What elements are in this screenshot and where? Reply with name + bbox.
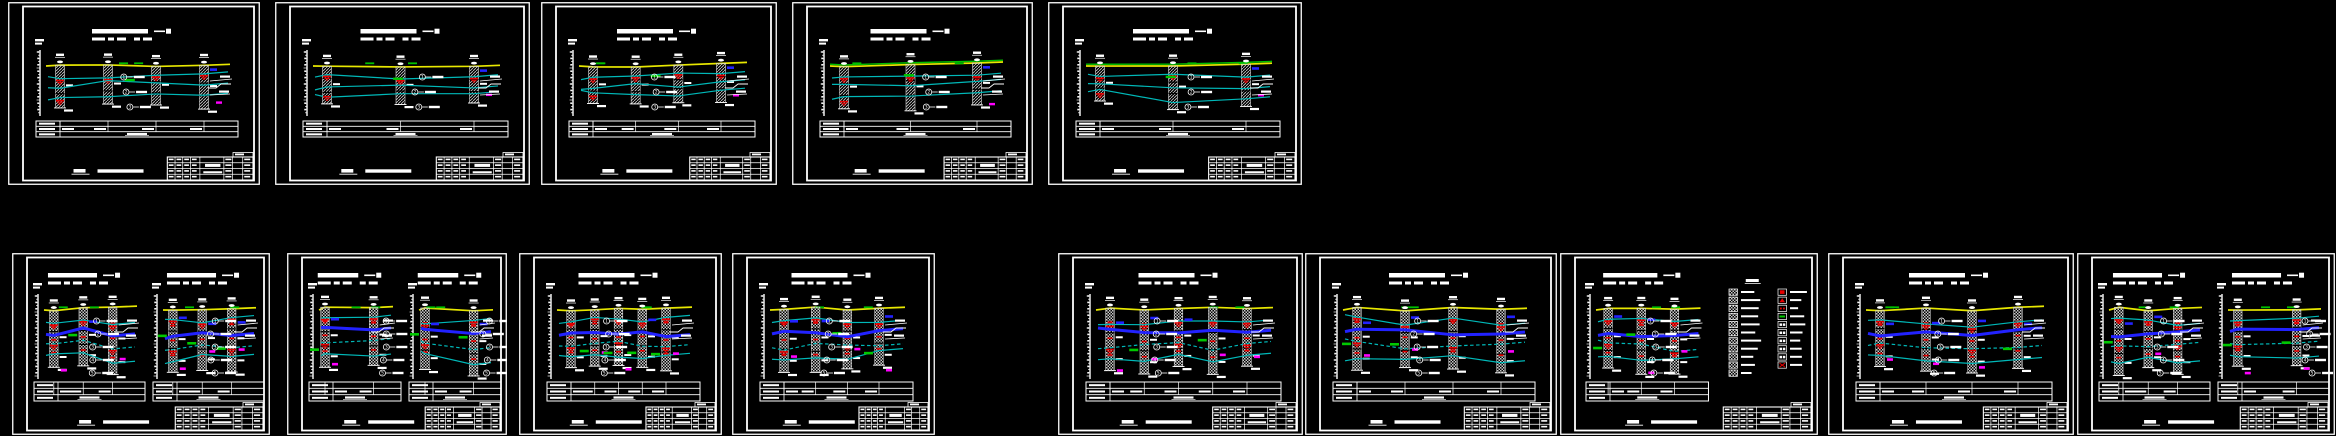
ground-surface-line <box>44 306 137 311</box>
borehole-column <box>321 55 340 108</box>
profile-data-table <box>2099 382 2210 401</box>
stratum-number: 2 <box>827 332 830 338</box>
profile-data-table <box>1586 382 1708 401</box>
profile-panel: 12345 <box>408 273 507 401</box>
drawing-sheet-B9[interactable]: 1234512345 <box>2077 253 2335 435</box>
panel-title <box>1909 273 1988 285</box>
stratum-number: 4 <box>825 358 828 364</box>
stratum-annotations: 123 <box>121 74 151 111</box>
signature-row <box>853 169 925 174</box>
stratum-number: 3 <box>605 345 608 351</box>
title-block <box>436 153 523 181</box>
elevation-callouts <box>725 76 749 96</box>
sheet-drawing: 123 <box>541 2 777 185</box>
stratum-number: 5 <box>91 371 94 377</box>
borehole-column <box>198 54 217 113</box>
stratum-number: 3 <box>1187 105 1190 111</box>
stratum-number: 2 <box>1155 332 1158 338</box>
stratum-number: 5 <box>2159 371 2162 377</box>
drawing-sheet-B1[interactable]: 1234512345 <box>12 253 270 435</box>
profile-panel: 12345 <box>1085 273 1281 401</box>
profile-panel: 123 <box>819 29 1011 137</box>
stratum-annotations: 123 <box>923 74 950 111</box>
stratum-number: 4 <box>486 358 489 364</box>
panel-title <box>792 273 871 285</box>
stratum-number: 5 <box>823 371 826 377</box>
panel-title <box>418 273 482 285</box>
elevation-ruler <box>1075 39 1084 116</box>
borehole-column <box>150 55 169 109</box>
sheet-drawing: 12345 <box>1058 253 1303 435</box>
sheet-drawing: 12345 <box>1560 253 1818 435</box>
stratum-number: 1 <box>1940 319 1943 325</box>
profile-data-table <box>820 121 1011 137</box>
borehole-column <box>1668 298 1687 378</box>
title-block <box>646 403 715 431</box>
stratum-number: 3 <box>214 345 217 351</box>
sheet-drawing: 123 <box>275 2 530 185</box>
stratum-number: 1 <box>2162 319 2165 325</box>
sheet-row-bottom: 1234512345123451234512345123451234512345… <box>0 253 2336 435</box>
title-block <box>944 153 1026 181</box>
stratum-number: 3 <box>417 105 420 111</box>
elevation-ruler <box>546 283 555 379</box>
signature-row <box>1625 420 1697 425</box>
elevation-callouts <box>478 76 502 96</box>
sheet-drawing: 123 <box>1048 2 1302 185</box>
signature-row <box>77 420 149 425</box>
stratum-number: 3 <box>91 345 94 351</box>
stratum-number: 4 <box>1651 358 1654 364</box>
profile-panel: 12345 <box>546 273 700 401</box>
stratum-number: 5 <box>2311 371 2314 377</box>
profile-data-table <box>569 121 755 137</box>
strata-lines <box>46 320 135 363</box>
sheet-drawing: 123 <box>792 2 1033 185</box>
stratum-number: 4 <box>1153 358 1156 364</box>
stratum-number: 3 <box>488 345 491 351</box>
drawing-sheet-T2[interactable]: 123 <box>275 2 530 185</box>
stratum-number: 4 <box>1937 358 1940 364</box>
stratum-annotations: 12345 <box>1411 318 1441 377</box>
sheet-drawing: 12345 <box>1305 253 1557 435</box>
panel-title <box>48 273 120 285</box>
stratum-number: 4 <box>209 358 212 364</box>
stratum-number: 1 <box>1156 319 1159 325</box>
ground-surface-line <box>557 306 692 310</box>
stratum-number: 1 <box>924 75 927 81</box>
stratum-number: 1 <box>1190 75 1193 81</box>
cad-model-space[interactable]: 1231231231231231234512345123451234512345… <box>0 0 2336 436</box>
stratum-number: 2 <box>97 332 100 338</box>
stratum-annotations: 12345 <box>1931 318 1962 377</box>
stratum-number: 5 <box>485 371 488 377</box>
panel-title <box>579 273 658 285</box>
profile-panel: 12345 <box>1585 273 1708 401</box>
elevation-ruler <box>1332 283 1341 379</box>
drawing-sheet-B6[interactable]: 12345 <box>1305 253 1557 435</box>
elevation-ruler <box>308 283 317 379</box>
stratum-number: 2 <box>125 90 128 96</box>
stratum-number: 4 <box>382 358 385 364</box>
drawing-sheet-B4[interactable]: 12345 <box>732 253 935 435</box>
panel-title <box>92 29 171 41</box>
panel-title <box>1603 273 1680 285</box>
signature-row <box>2142 420 2214 425</box>
elevation-callouts <box>2180 320 2204 340</box>
elevation-ruler <box>759 283 768 379</box>
signature-row <box>600 169 672 174</box>
panel-title <box>2113 273 2185 285</box>
stratum-number: 3 <box>1416 345 1419 351</box>
profile-panel: 12345 <box>1855 273 2052 401</box>
stratum-number: 2 <box>1412 332 1415 338</box>
profile-data-table <box>1086 382 1281 401</box>
drawing-sheet-B3[interactable]: 12345 <box>519 253 722 435</box>
stratum-number: 2 <box>927 90 930 96</box>
stratum-number: 3 <box>1939 345 1942 351</box>
sheet-drawing: 123 <box>8 2 260 185</box>
stratum-number: 1 <box>421 75 424 81</box>
elevation-ruler <box>1585 283 1594 379</box>
elevation-ruler <box>1085 283 1094 379</box>
profile-data-table <box>1333 382 1535 401</box>
sheet-row-top: 123123123123123 <box>0 2 2336 185</box>
borehole-column <box>2172 297 2191 378</box>
stratum-number: 3 <box>1654 345 1657 351</box>
borehole-column <box>1094 55 1113 105</box>
drawing-sheet-B5[interactable]: 12345 <box>1058 253 1303 435</box>
stratum-number: 1 <box>828 319 831 325</box>
panel-title <box>1133 29 1212 41</box>
signature-row <box>1112 169 1184 174</box>
elevation-ruler <box>2217 283 2226 379</box>
profile-panel: 123 <box>1075 29 1280 137</box>
stratum-number: 5 <box>1417 371 1420 377</box>
stratum-number: 3 <box>1155 345 1158 351</box>
profile-panel: 12345 <box>1332 273 1535 401</box>
panel-title <box>2232 273 2304 285</box>
sheet-drawing: 1234512345 <box>2077 253 2335 435</box>
elevation-ruler <box>2098 283 2107 379</box>
title-block <box>425 403 500 431</box>
elevation-ruler <box>408 283 417 379</box>
borehole-column <box>778 298 797 376</box>
panel-title <box>361 29 440 41</box>
profile-data-table <box>309 382 401 401</box>
title-block <box>1213 403 1296 431</box>
stratum-annotations: 12345 <box>480 318 507 377</box>
stratum-number: 1 <box>1649 319 1652 325</box>
panel-title <box>1389 273 1468 285</box>
ground-surface-line <box>163 306 256 310</box>
signature-row <box>1369 420 1441 425</box>
drawing-sheet-T5[interactable]: 123 <box>1048 2 1302 185</box>
stratum-number: 1 <box>653 75 656 81</box>
stratum-number: 4 <box>1418 358 1421 364</box>
signature-row <box>339 169 411 174</box>
stratum-number: 3 <box>2305 345 2308 351</box>
stratum-number: 2 <box>1190 90 1193 96</box>
elevation-ruler <box>568 39 577 116</box>
borehole-column <box>1966 299 1985 376</box>
stratum-number: 2 <box>1936 332 1939 338</box>
profile-data-table <box>1076 121 1280 137</box>
profile-data-table <box>547 382 700 401</box>
elevation-callouts <box>1505 320 1529 340</box>
stratum-number: 5 <box>381 371 384 377</box>
title-block <box>175 403 263 431</box>
profile-data-table <box>36 121 238 137</box>
signature-row <box>783 420 855 425</box>
profile-panel: 12345 <box>2098 273 2210 401</box>
title-block <box>859 403 928 431</box>
legend <box>1729 279 1807 376</box>
stratum-number: 4 <box>91 358 94 364</box>
drawing-sheet-B8[interactable]: 12345 <box>1828 253 2074 435</box>
stratum-number: 3 <box>830 345 833 351</box>
elevation-ruler <box>33 283 42 379</box>
title-block <box>1464 403 1550 431</box>
stratum-number: 2 <box>2160 332 2163 338</box>
profile-data-table <box>2218 382 2329 401</box>
panel-title <box>617 29 696 41</box>
stratum-number: 1 <box>214 319 217 325</box>
stratum-number: 4 <box>603 358 606 364</box>
panel-title <box>871 29 950 41</box>
profile-data-table <box>1856 382 2052 401</box>
stratum-number: 3 <box>925 105 928 111</box>
stratum-number: 5 <box>1933 371 1936 377</box>
stratum-annotations: 123 <box>412 74 443 111</box>
drawing-sheet-T4[interactable]: 123 <box>792 2 1033 185</box>
elevation-ruler <box>152 283 161 379</box>
elevation-callouts <box>1250 76 1274 96</box>
borehole-column <box>630 56 649 108</box>
elevation-ruler <box>1855 283 1864 379</box>
ground-surface-line <box>419 306 493 310</box>
ground-surface-line <box>2228 306 2321 310</box>
stratum-number: 5 <box>1157 371 1160 377</box>
stratum-number: 3 <box>2156 345 2159 351</box>
profile-panel: 12345 <box>759 273 913 401</box>
stratum-number: 1 <box>1416 319 1419 325</box>
profile-panel: 12345 <box>2217 273 2333 401</box>
stratum-number: 3 <box>385 345 388 351</box>
elevation-ruler <box>819 39 828 116</box>
stratum-number: 2 <box>1654 332 1657 338</box>
stratum-number: 1 <box>122 75 125 81</box>
title-block <box>690 153 770 181</box>
stratum-number: 1 <box>2304 319 2307 325</box>
stratum-number: 1 <box>605 319 608 325</box>
drawing-sheet-T3[interactable]: 123 <box>541 2 777 185</box>
signature-row <box>1890 420 1962 425</box>
ground-surface-line <box>770 306 905 310</box>
stratum-number: 2 <box>607 332 610 338</box>
stratum-number: 2 <box>209 332 212 338</box>
stratum-annotations: 123 <box>651 74 677 111</box>
stratum-number: 5 <box>1652 371 1655 377</box>
lithology-markers <box>1886 320 2032 369</box>
profile-data-table <box>303 121 508 137</box>
signature-row <box>342 420 414 425</box>
elevation-ruler <box>302 39 311 116</box>
profile-panel: 12345 <box>152 273 264 401</box>
title-block <box>1723 403 1811 431</box>
stratum-number: 3 <box>653 105 656 111</box>
stratum-number: 5 <box>214 371 217 377</box>
profile-data-table <box>409 382 501 401</box>
signature-row <box>72 169 144 174</box>
profile-data-table <box>34 382 145 401</box>
profile-data-table <box>153 382 264 401</box>
sheet-drawing: 12345 <box>732 253 935 435</box>
signature-row <box>570 420 642 425</box>
profile-panel: 12345 <box>308 273 407 401</box>
stratum-number: 1 <box>95 319 98 325</box>
ground-surface-line <box>319 306 393 310</box>
sheet-drawing: 12345 <box>519 253 722 435</box>
stratum-annotations: 123 <box>1185 74 1212 111</box>
drawing-sheet-T1[interactable]: 123 <box>8 2 260 185</box>
title-block <box>167 153 253 181</box>
title-block <box>2240 403 2328 431</box>
profile-panel: 123 <box>302 29 508 137</box>
stratum-number: 4 <box>2162 358 2165 364</box>
panel-title <box>167 273 239 285</box>
title-block <box>1209 153 1295 181</box>
panel-title <box>318 273 382 285</box>
sheet-drawing: 1234512345 <box>287 253 507 435</box>
stratum-number: 2 <box>414 90 417 96</box>
borehole-column <box>672 54 691 107</box>
sheet-drawing: 12345 <box>1828 253 2074 435</box>
drawing-sheet-B2[interactable]: 1234512345 <box>287 253 507 435</box>
title-block <box>1983 403 2067 431</box>
sheet-drawing: 1234512345 <box>12 253 270 435</box>
stratum-number: 5 <box>603 371 606 377</box>
profile-panel: 123 <box>568 29 755 137</box>
stratum-number: 2 <box>655 90 658 96</box>
stratum-number: 3 <box>128 105 131 111</box>
signature-row <box>1120 420 1192 425</box>
drawing-sheet-B7[interactable]: 12345 <box>1560 253 1818 435</box>
elevation-ruler <box>35 39 44 116</box>
stratum-number: 4 <box>2304 358 2307 364</box>
borehole-column <box>54 54 73 112</box>
profile-data-table <box>760 382 913 401</box>
panel-title <box>1139 273 1218 285</box>
profile-panel: 12345 <box>33 273 145 401</box>
borehole-column <box>715 52 734 106</box>
borehole-column <box>468 299 487 379</box>
profile-panel: 123 <box>35 29 238 137</box>
